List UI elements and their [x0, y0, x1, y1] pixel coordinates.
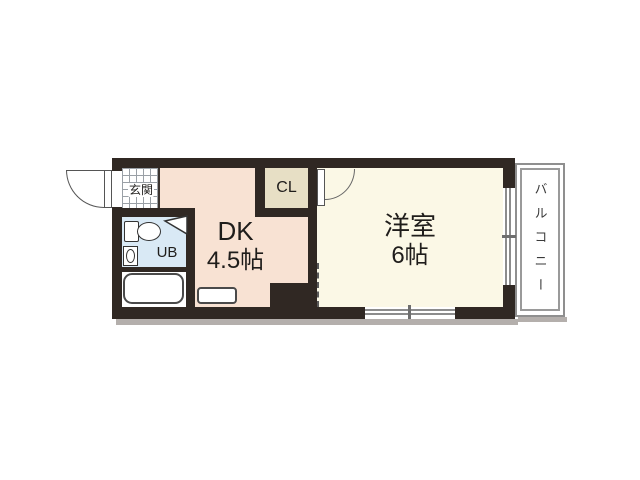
opening-dashed-line	[317, 263, 319, 307]
western-room-label: 洋室 6帖	[330, 211, 490, 270]
closet-label: CL	[265, 179, 308, 197]
entrance-door-swing	[66, 170, 104, 208]
washbasin-bowl	[126, 249, 135, 263]
dk-label-name: DK	[163, 216, 308, 247]
balcony-shadow	[518, 317, 567, 322]
dk-label-size: 4.5帖	[163, 247, 308, 275]
wall-left-stub	[112, 168, 122, 171]
wall-right-upper	[503, 168, 515, 188]
entrance-door-leaf	[104, 170, 112, 208]
dk-label: DK 4.5帖	[163, 216, 308, 275]
western-room-label-size: 6帖	[330, 242, 490, 270]
balcony-label: バルコニー	[520, 172, 560, 312]
wall-right-lower	[503, 285, 515, 307]
balcony-window-tick	[502, 235, 516, 238]
western-room-door-leaf	[317, 169, 325, 206]
wall-top	[112, 158, 515, 168]
kitchen-sink-unit	[197, 287, 237, 304]
wall-dk-western	[308, 168, 317, 285]
building-shadow	[116, 319, 518, 325]
bathtub	[123, 273, 184, 304]
western-room-label-name: 洋室	[330, 211, 490, 242]
wall-dk-corner-block	[270, 283, 317, 307]
wall-left	[112, 207, 122, 319]
genkan-label: 玄関	[123, 181, 159, 198]
floorplan: 玄関 UB DK 4.5帖 CL 洋室 6帖 バルコニー	[0, 0, 640, 480]
toilet-bowl	[137, 222, 161, 241]
